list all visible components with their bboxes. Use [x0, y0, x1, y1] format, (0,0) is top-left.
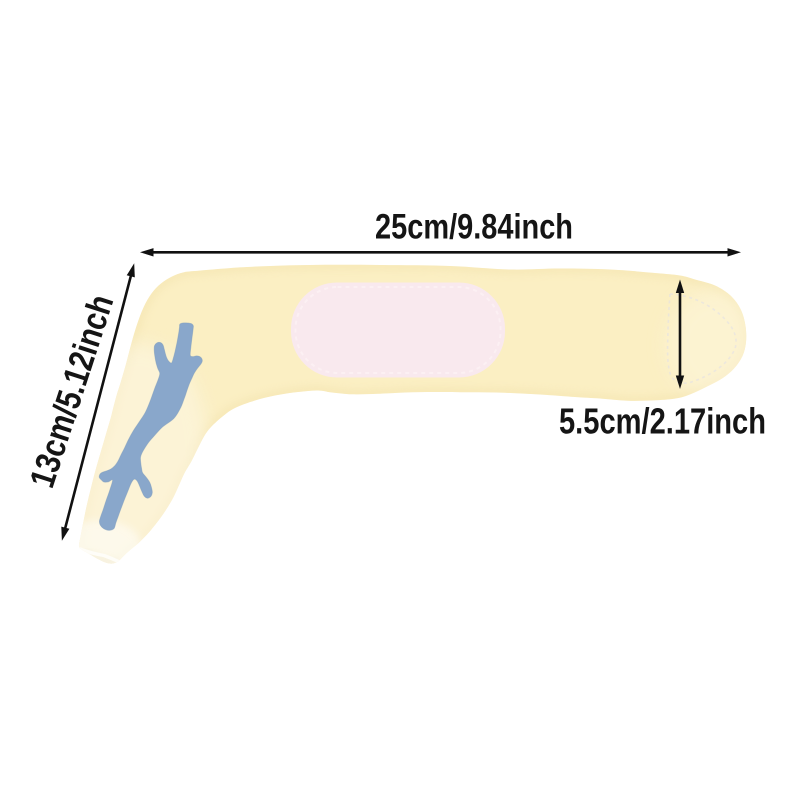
svg-text:5.5cm/2.17inch: 5.5cm/2.17inch [559, 401, 766, 442]
svg-text:25cm/9.84inch: 25cm/9.84inch [375, 208, 573, 247]
